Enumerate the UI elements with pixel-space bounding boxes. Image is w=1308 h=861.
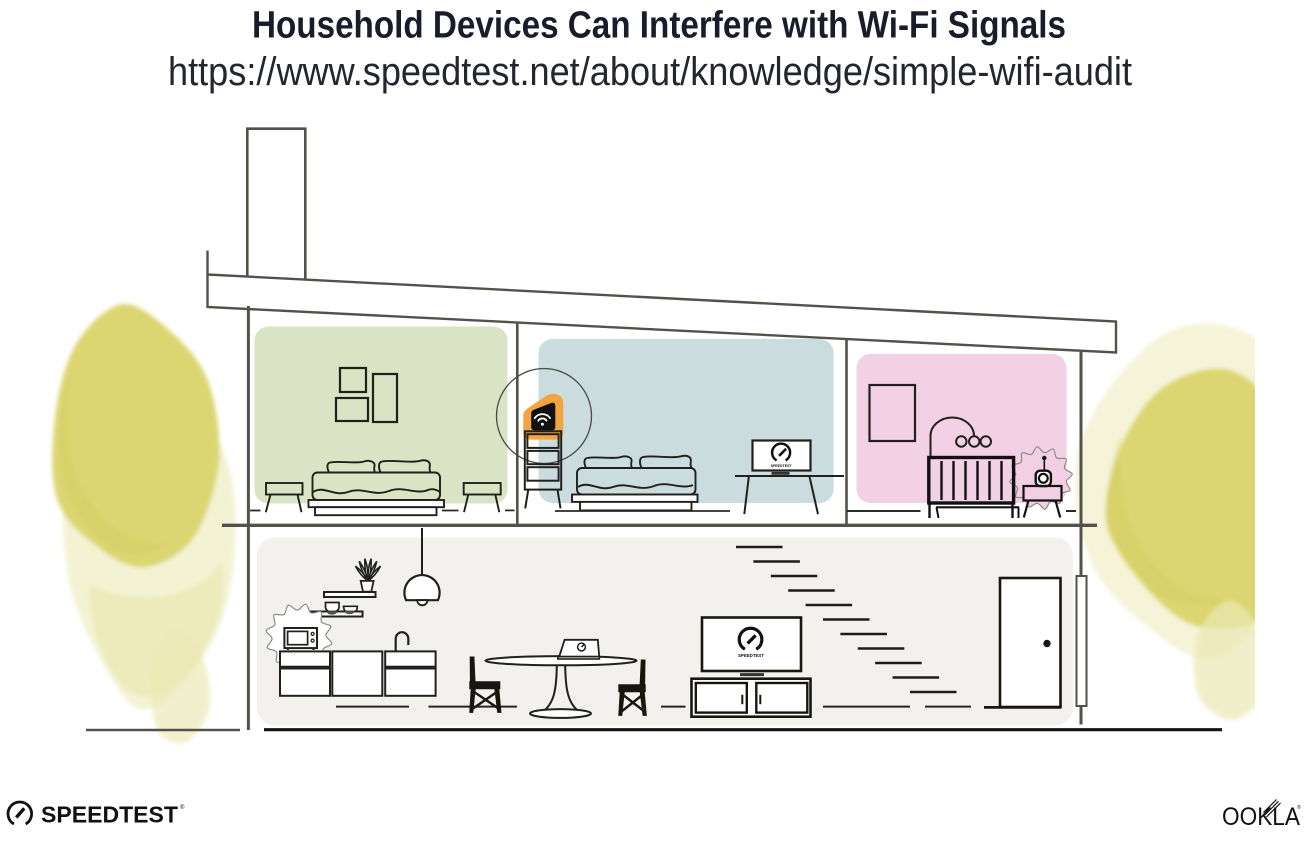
svg-text:OOKLA: OOKLA (1222, 803, 1300, 831)
svg-text:SPEEDTEST: SPEEDTEST (41, 802, 179, 828)
svg-text:SPEEDTEST: SPEEDTEST (771, 464, 793, 468)
svg-text:Household Devices Can Interfer: Household Devices Can Interfere with Wi-… (252, 5, 1066, 47)
svg-text:®: ® (180, 804, 185, 811)
svg-text:https://www.speedtest.net/abou: https://www.speedtest.net/about/knowledg… (168, 50, 1132, 94)
svg-text:SPEEDTEST: SPEEDTEST (738, 653, 764, 658)
svg-text:®: ® (1297, 804, 1301, 811)
